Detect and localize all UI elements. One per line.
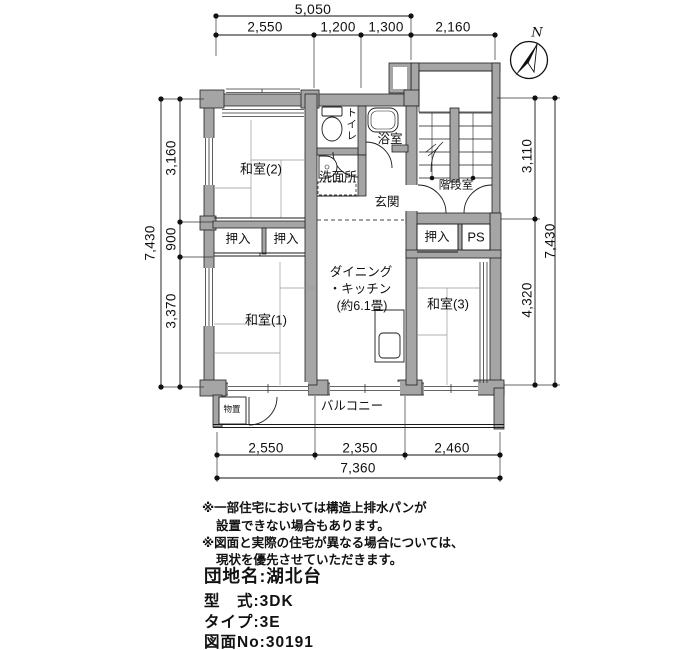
estate-name-line: 団地名:湖北台 [204, 563, 322, 588]
dim-right-seg-2: 4,320 [520, 282, 534, 317]
room-label-washitsu1: 和室(1) [245, 314, 287, 327]
dim-left-seg-3: 3,370 [164, 293, 178, 328]
dim-bottom-total: 7,360 [340, 461, 375, 475]
room-label-washitsu2: 和室(2) [240, 163, 282, 176]
dim-bottom-seg-1: 2,550 [248, 441, 283, 455]
room-label-closet-right: 押入 [424, 231, 449, 244]
dim-top-seg-2: 1,200 [320, 20, 355, 34]
stairs [419, 108, 492, 182]
dim-top-seg-3: 1,300 [368, 20, 403, 34]
dim-right-seg-1: 3,110 [520, 139, 534, 173]
dim-top-seg-1: 2,550 [247, 20, 282, 34]
room-label-pipe-space: PS [467, 231, 484, 244]
dim-left-total: 7,430 [143, 225, 157, 260]
dim-right-total: 7,430 [543, 223, 557, 258]
room-label-washitsu3: 和室(3) [427, 298, 469, 311]
floorplan-page: 5,050 2,550 1,200 1,300 2,160 7,430 3,16… [0, 0, 700, 650]
compass-icon [511, 42, 548, 79]
dim-top-total: 5,050 [295, 2, 332, 16]
model-line: 型 式:3DK [204, 589, 294, 611]
toilet-tank [322, 107, 342, 116]
dim-left-seg-1: 3,160 [164, 140, 178, 175]
room-label-stairwell: 階段室 [439, 180, 474, 192]
room-label-dk-line2: ・キッチン [329, 283, 392, 296]
north-label: N [531, 27, 542, 40]
dim-left-seg-2: 900 [164, 227, 178, 250]
room-label-dk-line3: (約6.1畳) [337, 300, 388, 313]
balcony-door-arc [249, 397, 277, 425]
dim-bottom-seg-3: 2,460 [434, 441, 469, 455]
toilet-bowl [322, 117, 342, 141]
room-label-storage: 物置 [223, 405, 240, 414]
plan-type-line: タイプ:3E [204, 610, 281, 632]
room-label-washroom: 洗面所 [319, 171, 357, 184]
bath-door-arc [366, 142, 392, 168]
room-label-closet-left1: 押入 [225, 233, 250, 246]
room-label-balcony: バルコニー [321, 400, 383, 413]
room-label-entrance: 玄関 [374, 196, 399, 209]
room-label-toilet: トイレ [346, 107, 357, 142]
drawing-no-line: 図面No:30191 [204, 630, 314, 650]
kitchen-sink [379, 333, 400, 358]
dim-top-stair: 2,160 [435, 20, 470, 34]
room-label-bath: 浴室 [377, 133, 402, 146]
dim-bottom-seg-2: 2,350 [342, 441, 377, 455]
room-label-dk-line1: ダイニング [330, 266, 393, 279]
note-line-1: ※一部住宅においては構造上排水パンが [202, 497, 427, 516]
room-label-closet-left2: 押入 [273, 233, 298, 246]
